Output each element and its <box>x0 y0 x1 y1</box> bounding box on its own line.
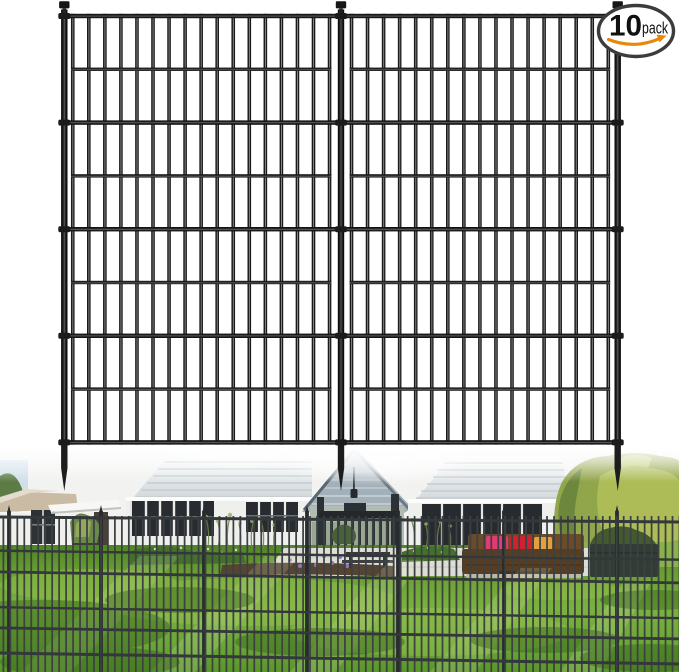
svg-text:pack: pack <box>642 20 669 38</box>
svg-text:10: 10 <box>609 10 642 43</box>
